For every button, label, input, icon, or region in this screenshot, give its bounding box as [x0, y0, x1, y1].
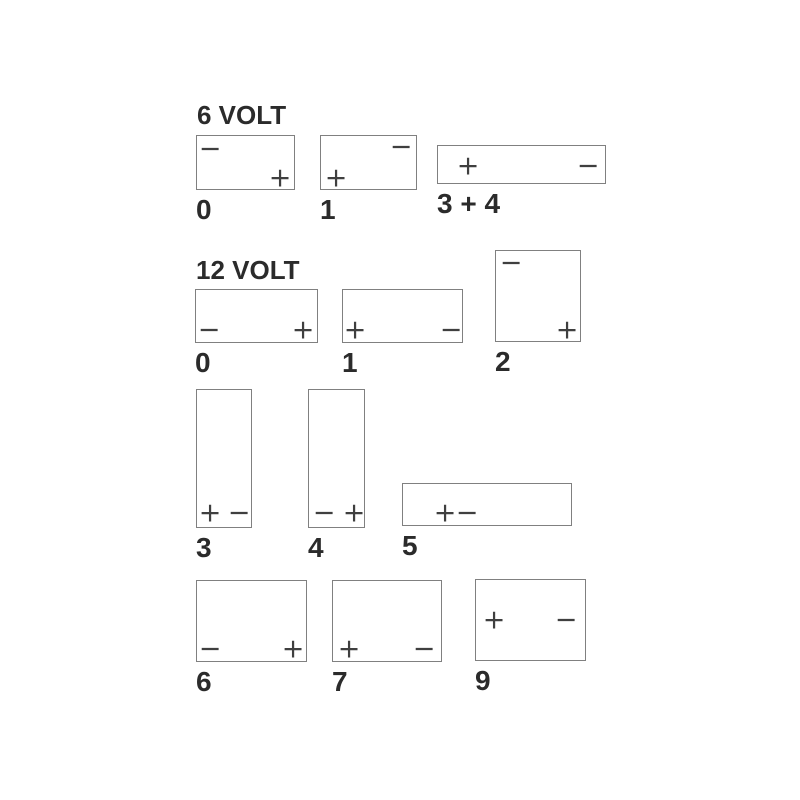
battery-label-12v-3: 3 [196, 534, 212, 562]
battery-label-12v-1: 1 [342, 349, 358, 377]
battery-label-12v-6: 6 [196, 668, 212, 696]
minus-terminal-icon: − [577, 153, 600, 180]
battery-box-12v-9: +− [475, 579, 586, 661]
battery-terminal-layout-diagram: 6 VOLT 12 VOLT −+0+−1+−3 + 4−+0+−1−+2+−3… [0, 0, 800, 800]
plus-terminal-icon: + [483, 607, 506, 634]
battery-box-12v-3: +− [196, 389, 252, 528]
minus-terminal-icon: − [313, 500, 336, 527]
battery-label-6v-0: 0 [196, 196, 212, 224]
plus-terminal-icon: + [343, 500, 366, 527]
battery-box-12v-5: +− [402, 483, 572, 526]
plus-terminal-icon: + [457, 153, 480, 180]
minus-terminal-icon: − [500, 250, 523, 277]
battery-label-12v-9: 9 [475, 667, 491, 695]
minus-terminal-icon: − [199, 136, 222, 163]
plus-terminal-icon: + [434, 500, 457, 527]
minus-terminal-icon: − [228, 500, 251, 527]
battery-box-12v-1: +− [342, 289, 463, 343]
battery-label-6v-1: 1 [320, 196, 336, 224]
minus-terminal-icon: − [198, 317, 221, 344]
battery-box-12v-7: +− [332, 580, 442, 662]
battery-box-6v-3-4: +− [437, 145, 606, 184]
battery-box-12v-4: −+ [308, 389, 365, 528]
battery-label-6v-3-4: 3 + 4 [437, 190, 500, 218]
battery-label-12v-4: 4 [308, 534, 324, 562]
plus-terminal-icon: + [282, 636, 305, 663]
battery-box-6v-1: +− [320, 135, 417, 190]
minus-terminal-icon: − [456, 500, 479, 527]
battery-label-12v-0: 0 [195, 349, 211, 377]
section-heading-12-volt: 12 VOLT [196, 257, 300, 283]
battery-label-12v-2: 2 [495, 348, 511, 376]
minus-terminal-icon: − [199, 636, 222, 663]
plus-terminal-icon: + [556, 317, 579, 344]
plus-terminal-icon: + [344, 317, 367, 344]
minus-terminal-icon: − [413, 636, 436, 663]
battery-box-12v-2: −+ [495, 250, 581, 342]
battery-label-12v-5: 5 [402, 532, 418, 560]
plus-terminal-icon: + [325, 165, 348, 192]
battery-label-12v-7: 7 [332, 668, 348, 696]
section-heading-6-volt: 6 VOLT [197, 102, 286, 128]
minus-terminal-icon: − [555, 607, 578, 634]
minus-terminal-icon: − [440, 317, 463, 344]
plus-terminal-icon: + [269, 165, 292, 192]
plus-terminal-icon: + [199, 500, 222, 527]
plus-terminal-icon: + [338, 636, 361, 663]
battery-box-12v-0: −+ [195, 289, 318, 343]
plus-terminal-icon: + [292, 317, 315, 344]
battery-box-12v-6: −+ [196, 580, 307, 662]
battery-box-6v-0: −+ [196, 135, 295, 190]
minus-terminal-icon: − [390, 134, 413, 161]
